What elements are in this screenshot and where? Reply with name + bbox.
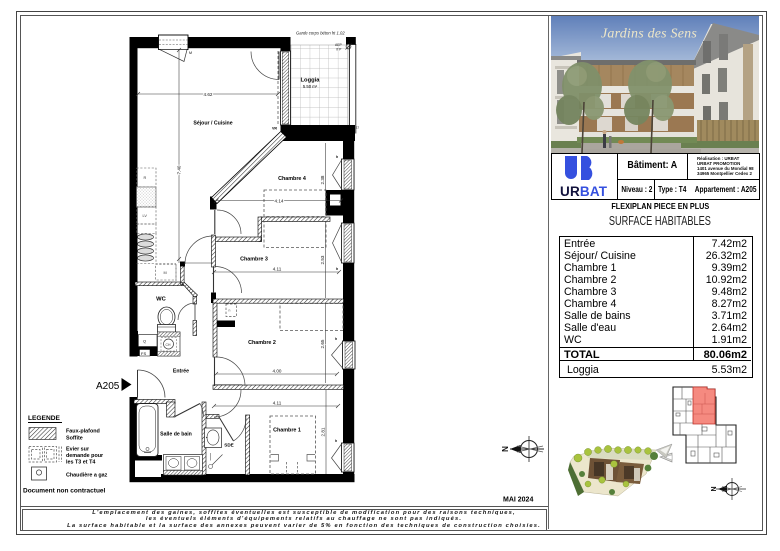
svg-text:4.00: 4.00 (273, 369, 282, 374)
svg-text:URBAT: URBAT (560, 184, 608, 199)
svg-text:Séjour / Cuisine: Séjour / Cuisine (193, 121, 232, 127)
svg-text:4.11: 4.11 (273, 401, 282, 406)
svg-text:demande pour: demande pour (66, 453, 104, 459)
svg-text:M: M (164, 271, 167, 275)
svg-text:4.11: 4.11 (273, 267, 282, 272)
svg-text:WC: WC (156, 297, 166, 303)
svg-text:4.14: 4.14 (275, 198, 284, 203)
svg-text:2.65: 2.65 (320, 339, 325, 348)
svg-text:VR: VR (272, 127, 277, 131)
svg-text:Salle de bain: Salle de bain (160, 432, 192, 438)
svg-text:LEGENDE: LEGENDE (28, 415, 60, 422)
svg-text:Soffite: Soffite (66, 436, 83, 442)
svg-text:Q: Q (143, 339, 146, 344)
svg-text:SDE: SDE (224, 443, 233, 448)
svg-text:Entrée: Entrée (173, 369, 189, 375)
svg-text:2.53: 2.53 (320, 255, 325, 264)
svg-text:2.81: 2.81 (321, 427, 326, 436)
svg-text:R: R (144, 176, 147, 180)
svg-text:A205: A205 (96, 381, 120, 392)
svg-text:N: N (711, 486, 718, 491)
svg-text:h: h (335, 439, 337, 443)
svg-text:2.38: 2.38 (320, 175, 325, 184)
svg-text:Evier sur: Evier sur (66, 447, 90, 453)
svg-text:les T3 et T4: les T3 et T4 (66, 460, 95, 466)
svg-text:4.62: 4.62 (204, 92, 213, 97)
svg-text:h: h (335, 337, 337, 341)
svg-text:h: h (336, 155, 338, 159)
svg-text:5.50 m²: 5.50 m² (303, 84, 318, 89)
svg-text:Document non contractuel: Document non contractuel (23, 488, 106, 495)
svg-text:Chambre 4: Chambre 4 (278, 176, 306, 182)
svg-text:FS: FS (141, 351, 146, 356)
svg-text:27: 27 (356, 126, 360, 130)
svg-text:Garde corps béton ht 1.02: Garde corps béton ht 1.02 (296, 31, 345, 36)
svg-text:Jardins des Sens: Jardins des Sens (601, 27, 697, 42)
svg-text:n: n (229, 309, 231, 313)
svg-text:Chambre 2: Chambre 2 (248, 340, 276, 346)
svg-text:lf P: lf P (337, 48, 343, 52)
svg-text:MAI 2024: MAI 2024 (503, 497, 533, 504)
svg-text:Loggia: Loggia (301, 78, 321, 84)
svg-text:LV: LV (143, 214, 148, 218)
svg-text:Chaudière a gaz: Chaudière a gaz (66, 473, 108, 479)
svg-text:h: h (336, 267, 338, 271)
svg-text:N: N (501, 446, 510, 452)
svg-text:Chambre 3: Chambre 3 (240, 257, 268, 263)
svg-text:AEP: AEP (335, 43, 343, 47)
svg-text:Chambre 1: Chambre 1 (273, 428, 301, 434)
svg-text:Faux-plafond: Faux-plafond (66, 429, 100, 435)
svg-text:CH: CH (166, 343, 171, 347)
svg-text:7.40: 7.40 (177, 165, 182, 174)
svg-text:M: M (189, 51, 192, 55)
